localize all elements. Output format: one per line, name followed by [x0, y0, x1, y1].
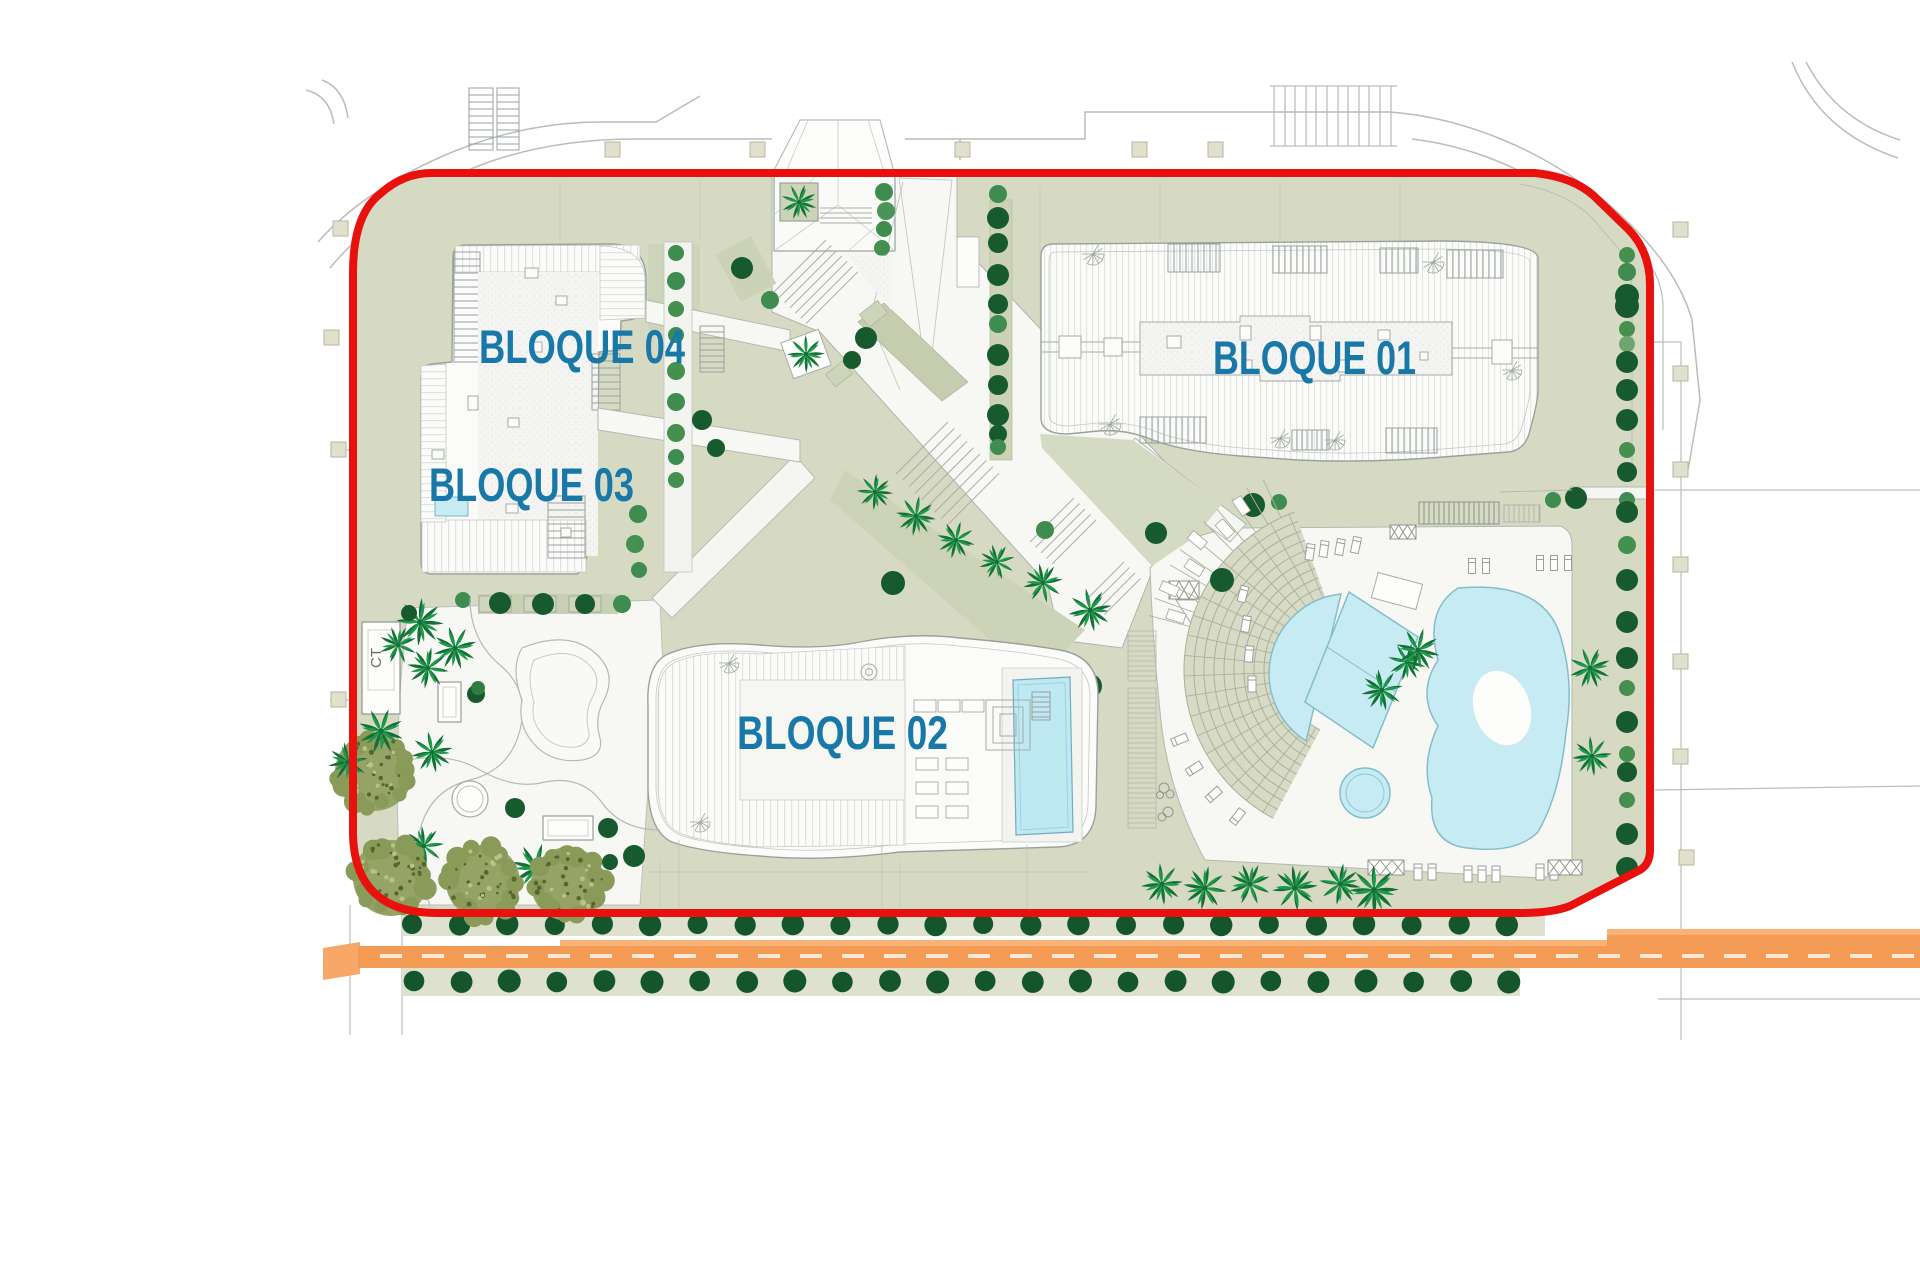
svg-text:BLOQUE 03: BLOQUE 03 [429, 458, 634, 511]
svg-text:BLOQUE 01: BLOQUE 01 [1213, 331, 1416, 384]
svg-text:BLOQUE 02: BLOQUE 02 [737, 706, 948, 759]
svg-text:BLOQUE 04: BLOQUE 04 [479, 320, 685, 373]
